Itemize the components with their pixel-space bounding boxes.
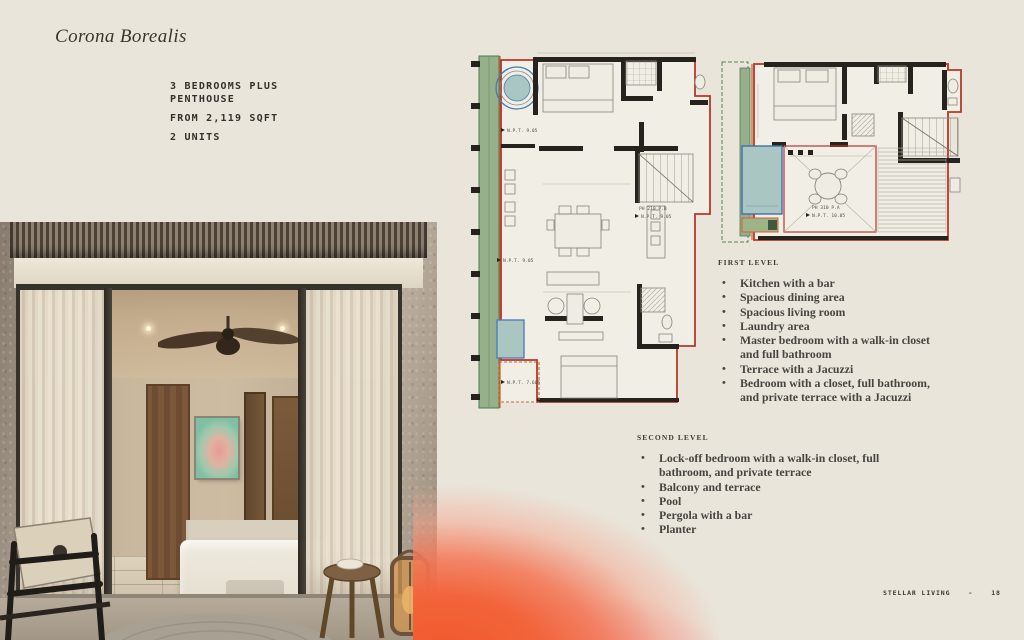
spec-area: FROM 2,119 SQFT	[170, 112, 302, 125]
list-item: Spacious living room	[718, 305, 934, 319]
list-item: Laundry area	[718, 319, 934, 333]
list-item: Terrace with a Jacuzzi	[718, 362, 934, 376]
list-item: Planter	[637, 522, 881, 536]
terrace-deck	[878, 148, 946, 232]
bedroom-render-photo	[0, 222, 437, 640]
svg-text:N.P.T. 9.05: N.P.T. 9.05	[641, 214, 672, 220]
list-item: Pergola with a bar	[637, 508, 881, 522]
svg-text:N.P.T. 9.05: N.P.T. 9.05	[507, 128, 538, 134]
side-stool	[322, 559, 382, 638]
pool	[742, 146, 782, 214]
second-level-list: Lock-off bedroom with a walk-in closet, …	[637, 451, 881, 537]
plunge-jacuzzi	[497, 320, 524, 358]
list-item: Pool	[637, 494, 881, 508]
svg-text:PH 210 P.B: PH 210 P.B	[639, 206, 667, 212]
planter	[742, 218, 778, 232]
unit-specs: 3 BEDROOMS PLUS PENTHOUSE FROM 2,119 SQF…	[170, 80, 302, 150]
spec-bedrooms: 3 BEDROOMS PLUS PENTHOUSE	[170, 80, 302, 106]
round-rug	[87, 614, 343, 640]
first-level-section: FIRST LEVEL Kitchen with a barSpacious d…	[718, 258, 934, 405]
foreground-furniture	[0, 222, 437, 640]
svg-text:N.P.T. 7.605: N.P.T. 7.605	[507, 380, 540, 386]
second-level-section: SECOND LEVEL Lock-off bedroom with a wal…	[637, 433, 881, 537]
brand-name: STELLAR LIVING	[883, 589, 950, 597]
first-level-list: Kitchen with a barSpacious dining areaSp…	[718, 276, 934, 405]
page-title: Corona Borealis	[55, 26, 187, 48]
list-item: Master bedroom with a walk-in closet and…	[718, 333, 934, 362]
footer-separator: -	[968, 589, 973, 597]
page-number: 18	[991, 589, 1001, 597]
svg-text:N.P.T. 10.05: N.P.T. 10.05	[812, 213, 845, 219]
list-item: Bedroom with a closet, full bathroom, an…	[718, 376, 934, 405]
second-level-heading: SECOND LEVEL	[637, 433, 881, 442]
list-item: Balcony and terrace	[637, 480, 881, 494]
first-level-heading: FIRST LEVEL	[718, 258, 934, 267]
svg-text:N.P.T. 9.05: N.P.T. 9.05	[503, 258, 534, 264]
list-item: Spacious dining area	[718, 290, 934, 304]
first-level-floor-plan: N.P.T. 9.05 N.P.T. 9.05 N.P.T. 7.605 PH …	[471, 44, 712, 418]
page-footer: STELLAR LIVING - 18	[883, 589, 1001, 597]
second-level-floor-plan: PH 310 P.A N.P.T. 10.05	[712, 54, 968, 254]
lantern	[392, 551, 428, 634]
spec-units: 2 UNITS	[170, 131, 302, 144]
list-item: Lock-off bedroom with a walk-in closet, …	[637, 451, 881, 480]
brochure-page: Corona Borealis 3 BEDROOMS PLUS PENTHOUS…	[0, 0, 1024, 640]
lounge-chair	[0, 518, 110, 640]
list-item: Kitchen with a bar	[718, 276, 934, 290]
svg-text:PH 310 P.A: PH 310 P.A	[812, 205, 840, 211]
